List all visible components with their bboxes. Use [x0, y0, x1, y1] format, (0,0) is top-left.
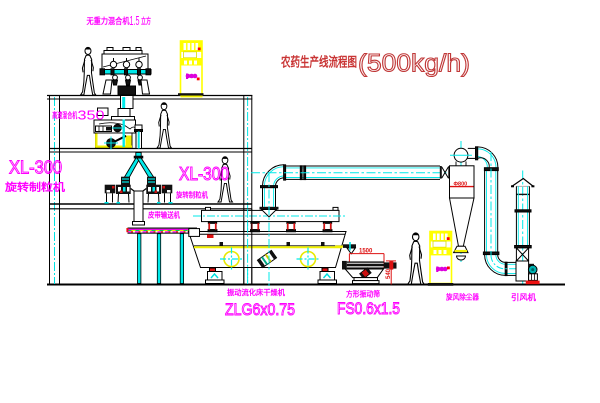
svg-text:1.5: 1.5: [130, 13, 140, 28]
svg-text:旋转制粒机: 旋转制粒机: [175, 190, 208, 200]
svg-text:1500: 1500: [359, 249, 373, 255]
svg-text:350: 350: [78, 108, 105, 123]
svg-text:旋风除尘器: 旋风除尘器: [445, 292, 479, 302]
svg-text:振动流化床干燥机: 振动流化床干燥机: [227, 287, 285, 297]
svg-text:高速混合机: 高速混合机: [52, 110, 77, 120]
svg-text:FS0.6x1.5: FS0.6x1.5: [337, 299, 400, 318]
svg-text:旋转制粒机: 旋转制粒机: [4, 181, 66, 194]
svg-text:ZLG6x0.75: ZLG6x0.75: [225, 300, 295, 319]
svg-text:XL-300: XL-300: [9, 158, 62, 178]
svg-text:农药生产线流程图: 农药生产线流程图: [280, 55, 357, 70]
svg-text:皮带输送机: 皮带输送机: [147, 210, 180, 220]
svg-text:XL-300: XL-300: [179, 164, 229, 184]
svg-text:引风机: 引风机: [511, 292, 536, 302]
svg-text:方形振动筛: 方形振动筛: [346, 289, 380, 299]
svg-text:(500kg/h): (500kg/h): [358, 50, 470, 78]
svg-text:立方: 立方: [141, 16, 151, 26]
svg-text:540: 540: [386, 268, 392, 279]
svg-text:无重力混合机: 无重力混合机: [86, 16, 130, 26]
svg-text:Φ800: Φ800: [454, 182, 468, 188]
